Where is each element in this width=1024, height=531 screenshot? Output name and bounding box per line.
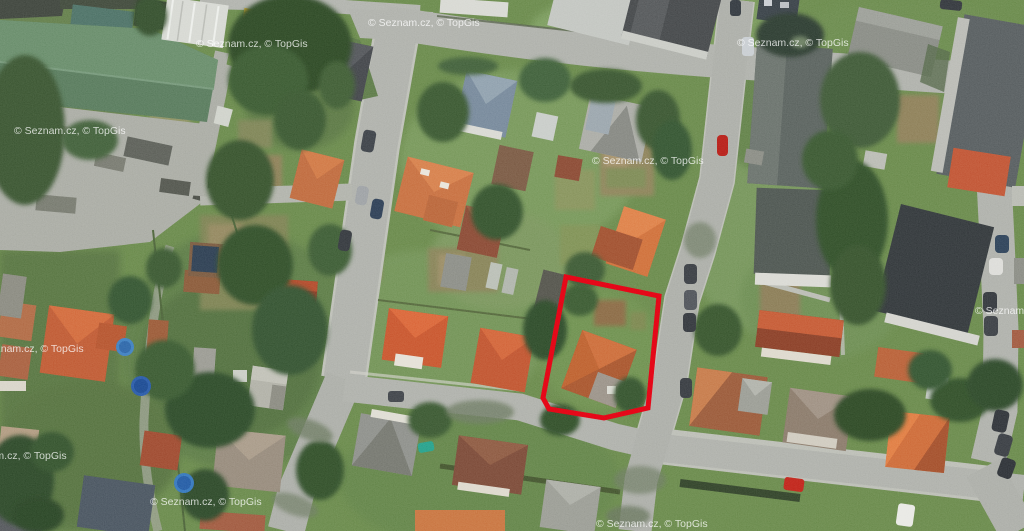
svg-text:© Seznam.cz, © TopGis: © Seznam.cz, © TopGis bbox=[737, 37, 849, 49]
svg-text:© Seznam.cz, © TopGis: © Seznam.cz, © TopGis bbox=[0, 343, 84, 355]
svg-text:© Seznam.cz, © TopGis: © Seznam.cz, © TopGis bbox=[0, 450, 67, 462]
svg-text:© Seznam.cz, © TopGis: © Seznam.cz, © TopGis bbox=[596, 518, 708, 530]
svg-text:© Seznam.cz, © TopGis: © Seznam.cz, © TopGis bbox=[196, 38, 308, 50]
svg-text:© Seznam.c: © Seznam.c bbox=[975, 305, 1024, 317]
svg-text:© Seznam.cz, © TopGis: © Seznam.cz, © TopGis bbox=[14, 125, 126, 137]
svg-text:© Seznam.cz, © TopGis: © Seznam.cz, © TopGis bbox=[592, 155, 704, 167]
svg-text:© Seznam.cz, © TopGis: © Seznam.cz, © TopGis bbox=[150, 496, 262, 508]
svg-text:© Seznam.cz, © TopGis: © Seznam.cz, © TopGis bbox=[368, 17, 480, 29]
